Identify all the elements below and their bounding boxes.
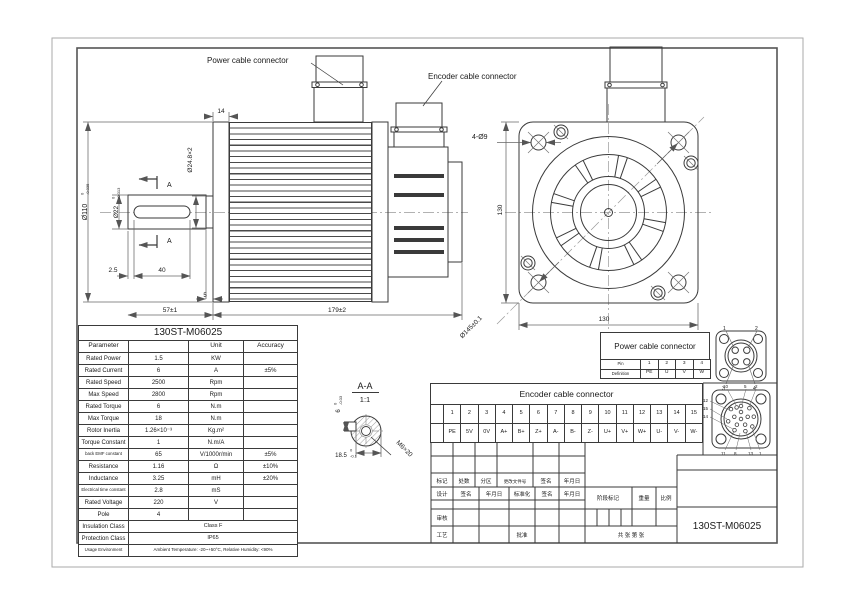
tb-weight: 重量 [638, 494, 650, 502]
cell: 2500 [129, 377, 189, 389]
power-pin-label-1: 1 [723, 326, 726, 332]
cell: mS [189, 485, 244, 497]
cell: A+ [495, 424, 512, 443]
cell: Rated Voltage [79, 497, 129, 509]
dim-body-length: 179±2 [328, 307, 346, 314]
table-row: Electrical time constant2.8mS [79, 485, 298, 497]
table-row: Rated Voltage220V [79, 497, 298, 509]
cell [244, 485, 298, 497]
cell [244, 509, 298, 521]
rear-band [372, 122, 388, 302]
enc-pin-label-14: 14 [703, 414, 709, 419]
table-row: Rated Power1.5KW [79, 353, 298, 365]
cell: 1.16 [129, 461, 189, 473]
cell: 1.5 [129, 353, 189, 365]
cell: V+ [616, 424, 633, 443]
table-row: 123456789101112131415 [431, 405, 703, 424]
cell: PE [444, 424, 461, 443]
cell: ±5% [244, 449, 298, 461]
encoder-connector-frontview [605, 47, 667, 122]
enc-pin-label-5: 5 [744, 384, 747, 389]
dim-shaft-length: 57±1 [163, 307, 178, 314]
cell: Pin [601, 360, 641, 370]
cell: KW [189, 353, 244, 365]
dim-flange-width: 14 [217, 108, 225, 115]
enc-pin-label-2: 2 [755, 384, 758, 389]
dim-key-depth-tol-lo: -0.1 [350, 454, 358, 459]
dim-key-offset: 2.5 [108, 267, 117, 274]
tb-date1: 年月日 [564, 477, 581, 485]
dim-key-width: 6 [336, 409, 342, 413]
end-cap [448, 162, 462, 262]
table-row: Pole4 [79, 509, 298, 521]
cell: W- [685, 424, 702, 443]
cell: 5V [461, 424, 478, 443]
power-connector-sideview [312, 56, 367, 122]
tb-standard: 标准化 [514, 490, 531, 498]
cell: B- [564, 424, 581, 443]
thread-callout: M6×20 [394, 439, 413, 458]
tb-sign3: 签名 [541, 490, 552, 498]
tb-mark: 标记 [436, 477, 448, 485]
cell: Resistance [79, 461, 129, 473]
dim-key-width-tol-hi: 0 [333, 402, 338, 405]
cell [244, 497, 298, 509]
tb-sign2: 签名 [460, 490, 471, 498]
enc-pin-label-10: 10 [723, 384, 729, 389]
cell: 1.26×10⁻³ [129, 425, 189, 437]
cell: 3 [676, 360, 694, 370]
cell: V- [668, 424, 685, 443]
dim-flange-dia-tol-hi: 0 [80, 192, 85, 195]
cell: Max Speed [79, 389, 129, 401]
cell: Class F [129, 521, 298, 533]
tb-sign1: 签名 [540, 477, 551, 485]
tb-count: 处数 [458, 477, 470, 485]
power-connector-drawing [716, 331, 766, 384]
cell: N.m/A [189, 437, 244, 449]
cell [189, 509, 244, 521]
table-row: Pin1234 [601, 360, 711, 370]
cell: Rpm [189, 389, 244, 401]
encoder-table-title: Encoder cable connector [431, 384, 703, 405]
encoder-callout-label: Encoder cable connector [428, 72, 517, 81]
cell: ±10% [244, 461, 298, 473]
power-callout-label: Power cable connector [207, 56, 289, 65]
section-scale: 1:1 [360, 395, 370, 404]
cell: ±5% [244, 365, 298, 377]
cell: 2 [658, 360, 676, 370]
cell: 3.25 [129, 473, 189, 485]
col-header: Parameter [79, 341, 129, 353]
cell: 14 [668, 405, 685, 424]
dim-shaft-dia: Ø22 [113, 205, 120, 218]
table-row: Torque Constant1N.m/A [79, 437, 298, 449]
cell: Rated Current [79, 365, 129, 377]
cell: Z- [582, 424, 599, 443]
cell: 11 [616, 405, 633, 424]
dim-flange-height: 130 [497, 204, 504, 215]
cell: 2800 [129, 389, 189, 401]
cell: 65 [129, 449, 189, 461]
cell: 3 [478, 405, 495, 424]
table-row: back EMF constant65V/1000r/min±5% [79, 449, 298, 461]
enc-pin-label-12: 12 [703, 398, 709, 403]
cell: Definition [601, 369, 641, 379]
table-row: Rated Torque6N.m [79, 401, 298, 413]
cell: 1 [444, 405, 461, 424]
cell: Z+ [530, 424, 547, 443]
cell: N.m [189, 413, 244, 425]
cell: U [658, 369, 676, 379]
cell: 220 [129, 497, 189, 509]
cell [431, 405, 444, 424]
rear-housing [388, 147, 448, 277]
cell: Rotor Inertia [79, 425, 129, 437]
cell: ±20% [244, 473, 298, 485]
parameter-table: 130ST-M06025 ParameterUnitAccuracy Rated… [78, 325, 298, 557]
cell [244, 377, 298, 389]
cell: A- [547, 424, 564, 443]
cell [244, 425, 298, 437]
cell: Rated Power [79, 353, 129, 365]
dim-flange-dia: Ø110 [82, 204, 89, 221]
cell: Rated Torque [79, 401, 129, 413]
cell: U+ [599, 424, 616, 443]
cell: Rpm [189, 377, 244, 389]
tb-craft: 工艺 [436, 532, 448, 539]
tb-zone: 分区 [480, 477, 492, 485]
cell: Ambient Temperature: -20~+50°C, Relative… [129, 545, 298, 557]
cell [244, 437, 298, 449]
table-row: Rated Speed2500Rpm [79, 377, 298, 389]
drawing-sheet: Power cable connector Encoder cable conn… [0, 0, 855, 605]
section-title: A-A [357, 381, 372, 391]
cell: Usage Environment [79, 545, 129, 557]
cell: B+ [513, 424, 530, 443]
table-row: Max Torque18N.m [79, 413, 298, 425]
vent-slots [394, 174, 444, 254]
tb-sheets: 共 张 第 张 [618, 531, 645, 539]
cell: Torque Constant [79, 437, 129, 449]
cell: 8 [564, 405, 581, 424]
tb-docno: 更改文件号 [504, 478, 527, 485]
cell: IP65 [129, 533, 298, 545]
cell: 4 [129, 509, 189, 521]
section-mark-a-top: A [167, 182, 172, 189]
keyway-slot [134, 206, 190, 218]
dim-key-length: 40 [158, 267, 166, 274]
tb-stage: 阶段标记 [597, 494, 620, 502]
cell: Kg.m² [189, 425, 244, 437]
cell: Electrical time constant [79, 485, 129, 497]
model-number: 130ST-M06025 [693, 521, 762, 532]
col-header: Accuracy [244, 341, 298, 353]
front-flange [213, 122, 229, 302]
table-row: Rated Current6A±5% [79, 365, 298, 377]
cell: N.m [189, 401, 244, 413]
cell: 4 [693, 360, 711, 370]
cell: V [189, 497, 244, 509]
param-table-title: 130ST-M06025 [79, 326, 298, 341]
power-table-title: Power cable connector [600, 332, 710, 360]
encoder-connector-drawing [710, 389, 770, 450]
cell: W [693, 369, 711, 379]
table-row: Rotor Inertia1.26×10⁻³Kg.m² [79, 425, 298, 437]
cell: 7 [547, 405, 564, 424]
dim-step: 5 [203, 293, 207, 299]
cell: W+ [633, 424, 650, 443]
cell: V [676, 369, 694, 379]
cell: back EMF constant [79, 449, 129, 461]
table-row: Resistance1.16Ω±10% [79, 461, 298, 473]
motor-fins [229, 122, 372, 302]
cell: 6 [129, 401, 189, 413]
tb-audit: 审核 [436, 514, 448, 522]
power-pin-table: Pin1234 DefinitionPEUVW [600, 359, 711, 379]
cell: Inductance [79, 473, 129, 485]
dim-shaft-dia-tol-lo: -0.013 [116, 187, 121, 199]
cell: Ω [189, 461, 244, 473]
cell: 18 [129, 413, 189, 425]
cell: Pole [79, 509, 129, 521]
cell: U- [651, 424, 668, 443]
power-pin-label-2: 2 [755, 326, 758, 332]
cell [244, 413, 298, 425]
cell: 10 [599, 405, 616, 424]
cell [244, 401, 298, 413]
cell: 12 [633, 405, 650, 424]
dim-boss-dia: Ø24.8×2 [187, 147, 194, 173]
cell: mH [189, 473, 244, 485]
enc-pin-label-15: 15 [703, 406, 709, 411]
tb-approve: 批准 [516, 531, 528, 539]
table-row: Insulation ClassClass F [79, 521, 298, 533]
col-header [129, 341, 189, 353]
cell: V/1000r/min [189, 449, 244, 461]
dim-key-width-tol-lo: -0.03 [338, 395, 343, 405]
dim-shaft-dia-tol-hi: 0 [111, 196, 116, 199]
table-row: Protection ClassIP65 [79, 533, 298, 545]
cell: 6 [129, 365, 189, 377]
section-mark-a-bottom: A [167, 238, 172, 245]
cell [244, 353, 298, 365]
cell: Protection Class [79, 533, 129, 545]
tb-date2: 年月日 [486, 490, 503, 498]
cell: 1 [129, 437, 189, 449]
encoder-pin-table: Encoder cable connector 1234567891011121… [430, 383, 703, 443]
cell: 5 [513, 405, 530, 424]
cell [431, 424, 444, 443]
dim-key-depth-tol-hi: 0 [350, 448, 353, 453]
cell: Max Torque [79, 413, 129, 425]
shaft-boss [206, 196, 213, 228]
cell: 15 [685, 405, 702, 424]
cell: A [189, 365, 244, 377]
col-header: Unit [189, 341, 244, 353]
cell: 2 [461, 405, 478, 424]
tb-design: 设计 [436, 490, 448, 498]
dim-flange-width-front: 130 [599, 316, 610, 323]
cell: 2.8 [129, 485, 189, 497]
cell: 6 [530, 405, 547, 424]
table-row: Inductance3.25mH±20% [79, 473, 298, 485]
cell: Rated Speed [79, 377, 129, 389]
cell: 13 [651, 405, 668, 424]
cell: 1 [641, 360, 659, 370]
cell: 4 [495, 405, 512, 424]
cell: PE [641, 369, 659, 379]
table-row: DefinitionPEUVW [601, 369, 711, 379]
tb-date3: 年月日 [564, 490, 581, 498]
tb-scale: 比例 [660, 494, 672, 502]
encoder-connector-sideview [391, 103, 447, 147]
cell: 9 [582, 405, 599, 424]
table-row: Usage EnvironmentAmbient Temperature: -2… [79, 545, 298, 557]
table-row: Max Speed2800Rpm [79, 389, 298, 401]
title-block-text: 标记 处数 分区 更改文件号 签名 年月日 设计 签名 年月日 标准化 签名 年… [436, 477, 672, 539]
dim-mount-holes: 4-Ø9 [472, 134, 488, 141]
dim-flange-dia-tol-lo: -0.035 [85, 183, 90, 195]
table-row: PE5V0VA+B+Z+A-B-Z-U+V+W+U-V-W- [431, 424, 703, 443]
cell: Insulation Class [79, 521, 129, 533]
cell: 0V [478, 424, 495, 443]
cell [244, 389, 298, 401]
dim-key-depth: 18.5 [335, 453, 347, 459]
dim-bolt-circle: Ø145±0.1 [459, 315, 484, 340]
